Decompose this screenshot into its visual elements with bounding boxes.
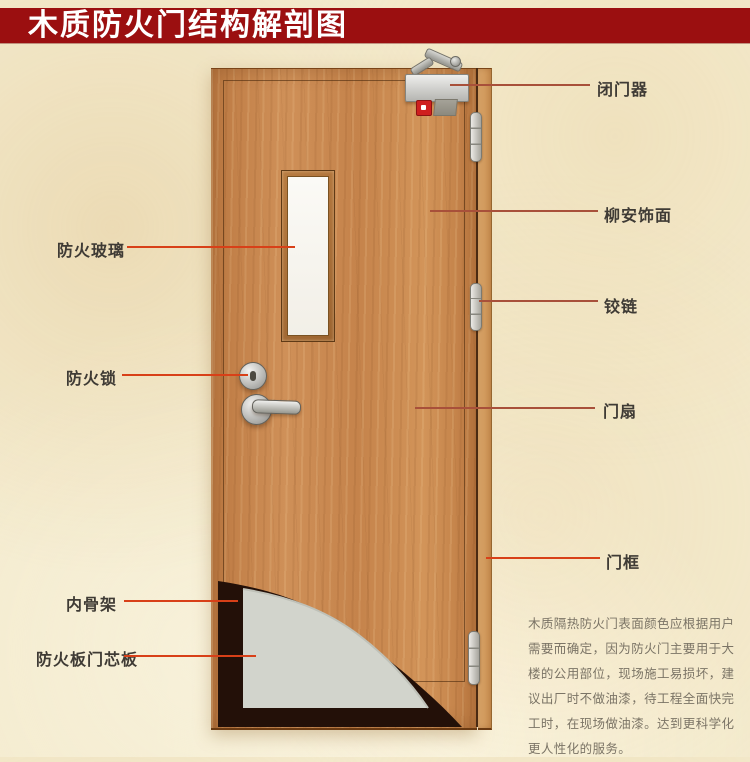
fire-glass-window — [281, 170, 335, 342]
label-inner-skeleton: 内骨架 — [66, 591, 117, 615]
door-closer-pivot — [450, 56, 461, 67]
door-frame-illustration — [478, 68, 492, 730]
label-hinge: 铰链 — [604, 293, 638, 317]
alarm-indicator-dot — [421, 105, 426, 110]
hinge-middle — [470, 283, 482, 331]
note-line: 工时，在现场做油漆。达到更科学化 — [528, 712, 738, 737]
leader-line-door-frame — [486, 557, 600, 559]
leader-line-door-closer — [450, 84, 590, 86]
keyhole-icon — [250, 371, 256, 381]
fire-lock-cylinder — [239, 362, 267, 390]
note-line: 需要而确定，因为防火门主要用于大 — [528, 637, 738, 662]
fire-board-core-layer — [243, 589, 428, 708]
leader-line-fire-glass — [127, 246, 295, 248]
door-handle — [252, 399, 301, 415]
diagram-stage: 木质防火门结构解剖图 防火玻璃 防火锁 内骨架 防火板门芯板 闭门器 柳安饰面 … — [0, 0, 750, 757]
leader-line-hinge — [479, 300, 598, 302]
note-line: 议出厂时不做油漆，待工程全面快完 — [528, 687, 738, 712]
glass-pane — [287, 176, 329, 336]
page-title: 木质防火门结构解剖图 — [28, 9, 348, 42]
label-door-frame: 门框 — [606, 549, 640, 573]
title-banner: 木质防火门结构解剖图 — [0, 8, 750, 43]
mounting-plate — [433, 99, 458, 116]
hinge-bottom — [468, 631, 480, 685]
leader-line-lauan-veneer — [430, 210, 598, 212]
leader-line-fire-board-core — [124, 655, 256, 657]
note-line: 更人性化的服务。 — [528, 737, 738, 762]
label-door-leaf: 门扇 — [603, 398, 637, 422]
label-fire-board-core: 防火板门芯板 — [36, 646, 138, 670]
note-line: 木质隔热防火门表面颜色应根据用户 — [528, 612, 738, 637]
leader-line-door-leaf — [415, 407, 595, 409]
leader-line-fire-lock — [122, 374, 248, 376]
note-line: 楼的公用部位，现场施工易损坏，建 — [528, 662, 738, 687]
leader-line-inner-skeleton — [124, 600, 238, 602]
label-door-closer: 闭门器 — [597, 76, 648, 100]
door-closer-body — [405, 74, 469, 102]
label-fire-lock: 防火锁 — [66, 365, 117, 389]
cutaway-section — [211, 573, 477, 727]
label-fire-glass: 防火玻璃 — [57, 237, 125, 261]
description-note: 木质隔热防火门表面颜色应根据用户 需要而确定，因为防火门主要用于大 楼的公用部位… — [528, 612, 738, 762]
label-lauan-veneer: 柳安饰面 — [604, 202, 672, 226]
hinge-top — [470, 112, 482, 162]
alarm-indicator — [416, 100, 432, 116]
